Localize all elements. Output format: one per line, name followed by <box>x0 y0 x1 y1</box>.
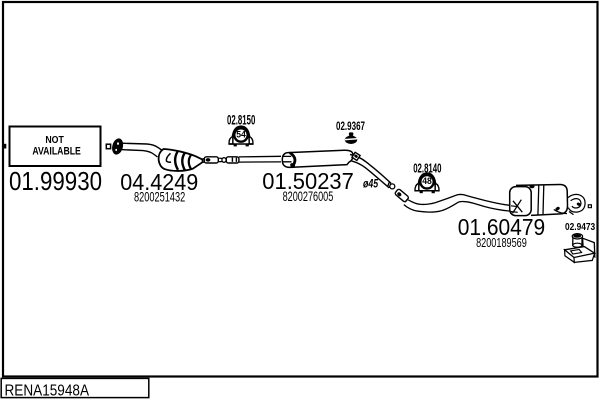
svg-text:8200251432: 8200251432 <box>134 190 185 205</box>
svg-text:48: 48 <box>422 175 432 186</box>
svg-text:RENA15948A: RENA15948A <box>5 383 90 400</box>
svg-text:54: 54 <box>236 128 246 139</box>
svg-text:01.99930: 01.99930 <box>9 168 102 196</box>
svg-text:02.9473: 02.9473 <box>565 222 595 233</box>
svg-text:8200189569: 8200189569 <box>476 235 527 250</box>
svg-text:AVAILABLE: AVAILABLE <box>32 145 81 157</box>
svg-text:ø45: ø45 <box>363 177 379 191</box>
svg-text:8200276005: 8200276005 <box>283 189 334 204</box>
svg-text:02.9367: 02.9367 <box>336 119 365 133</box>
